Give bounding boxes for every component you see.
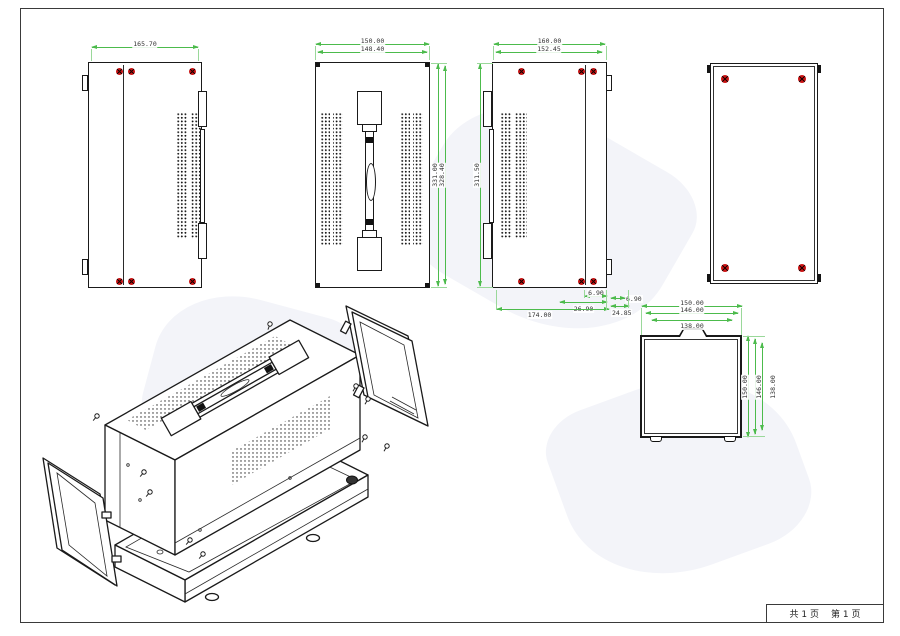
drawing-sheet: 165.70 150.00 148.40 331.00 328.40 xyxy=(0,0,900,636)
exploded-view-drawing xyxy=(40,300,470,610)
mount-tab xyxy=(606,75,612,91)
screw-icon xyxy=(518,68,525,75)
corner-tab xyxy=(707,65,710,73)
vent-grid xyxy=(401,113,423,245)
current-page-label: 第 1 页 xyxy=(831,607,860,620)
dimension-width-inner: 148.40 xyxy=(318,52,427,53)
dimension-bottom-small: 6.90 xyxy=(585,296,607,297)
dimension-height-inner: 328.40 xyxy=(445,66,446,284)
vent-grid xyxy=(321,113,343,245)
bracket-tab xyxy=(198,91,207,127)
vent-grid xyxy=(501,113,527,239)
screw-icon xyxy=(721,264,729,272)
vent-grid xyxy=(177,113,201,239)
dim-label: 6.90 xyxy=(587,289,605,297)
screw-icon xyxy=(721,75,729,83)
dim-label: 138.00 xyxy=(769,374,777,399)
bracket-tab xyxy=(483,223,492,259)
foot xyxy=(307,535,320,542)
screw-icon xyxy=(189,68,196,75)
screw-icon xyxy=(128,68,135,75)
dimension-right-2: 146.00 xyxy=(755,339,756,434)
handle-oval-cutout xyxy=(366,163,376,201)
screw-icon xyxy=(116,68,123,75)
screw-icon xyxy=(189,278,196,285)
dim-label: 160.00 xyxy=(537,37,562,45)
handle-end-block xyxy=(357,91,382,125)
dim-label: 311.50 xyxy=(473,162,481,187)
corner-mark xyxy=(316,63,320,67)
screw-icon xyxy=(578,278,585,285)
view-side-panel xyxy=(88,62,202,288)
vent-gap xyxy=(512,113,515,239)
extension-line xyxy=(743,436,765,437)
panel-inner-edge xyxy=(644,339,738,434)
corner-tab xyxy=(707,274,710,282)
extension-line xyxy=(477,63,493,64)
view-top-panel xyxy=(315,62,430,288)
bracket-tab xyxy=(198,223,207,259)
extension-line xyxy=(477,287,493,288)
bracket-rail xyxy=(489,129,494,223)
corner-mark xyxy=(425,63,429,67)
dim-label: 328.40 xyxy=(438,162,446,187)
handle-grip-pad xyxy=(366,137,373,143)
screw-icon xyxy=(798,264,806,272)
dimension-right-1: 150.00 xyxy=(748,336,749,437)
mount-tab xyxy=(82,259,88,275)
screw-icon xyxy=(578,68,585,75)
extension-line xyxy=(431,287,447,288)
panel-inner-edge xyxy=(713,66,815,281)
extension-line xyxy=(91,49,92,61)
foot xyxy=(724,436,736,442)
screw-icon xyxy=(128,278,135,285)
dimension-height: 311.50 xyxy=(480,64,481,286)
dimension-top-3: 138.00 xyxy=(652,320,732,321)
total-pages-label: 共 1 页 xyxy=(790,607,819,620)
extension-line xyxy=(493,46,494,60)
dim-label: 148.40 xyxy=(360,45,385,53)
panel-seam-line xyxy=(123,65,124,285)
corner-mark xyxy=(316,283,320,287)
extension-line xyxy=(743,336,765,337)
corner-tab xyxy=(818,65,821,73)
screw-icon xyxy=(116,278,123,285)
bracket-rail xyxy=(200,129,205,223)
handle-end-block xyxy=(357,237,382,271)
dim-label: 146.00 xyxy=(679,306,704,314)
extension-line xyxy=(431,63,447,64)
dimension-bottom-mid: 26.90 xyxy=(560,302,607,303)
extension-line xyxy=(584,290,585,298)
dim-label: 150.00 xyxy=(741,374,749,399)
foot xyxy=(650,436,662,442)
dimension-width-inner: 152.45 xyxy=(496,52,602,53)
screw-icon xyxy=(590,68,597,75)
dim-label: 150.00 xyxy=(360,37,385,45)
vent-gap xyxy=(410,113,413,245)
extension-line xyxy=(198,49,199,61)
dimension-right-3: 138.00 xyxy=(762,343,763,430)
panel-seam-line xyxy=(585,65,586,285)
extension-line xyxy=(641,308,642,335)
view-back-panel xyxy=(710,63,818,284)
dimension-bottom-overall: 174.00 xyxy=(497,309,609,310)
view-vent-panel xyxy=(492,62,607,288)
handle-grip-pad xyxy=(366,219,373,225)
extension-line xyxy=(315,46,316,60)
bracket-tab xyxy=(483,91,492,127)
mount-tab xyxy=(82,75,88,91)
view-front-panel xyxy=(640,335,742,438)
dim-label: 152.45 xyxy=(536,45,561,53)
dim-label: 174.00 xyxy=(527,311,552,319)
vent-gap xyxy=(187,113,190,239)
extension-line xyxy=(429,46,430,60)
extension-line xyxy=(628,290,629,308)
dimension-bottom-right-top: 6.90 xyxy=(611,298,625,299)
screw-icon xyxy=(798,75,806,83)
dim-label: 24.85 xyxy=(611,309,633,317)
extension-line xyxy=(741,308,742,335)
title-block: 共 1 页 第 1 页 xyxy=(766,604,883,622)
dimension-width: 165.70 xyxy=(92,47,198,48)
dimension-top-2: 146.00 xyxy=(646,313,738,314)
screw-icon xyxy=(590,278,597,285)
dim-label: 138.00 xyxy=(679,322,704,330)
dimension-bottom-right-bottom: 24.85 xyxy=(611,306,629,307)
extension-line xyxy=(606,46,607,60)
dim-label: 165.70 xyxy=(132,40,157,48)
mount-tab xyxy=(606,259,612,275)
corner-tab xyxy=(818,274,821,282)
foot xyxy=(206,594,219,601)
screw-icon xyxy=(518,278,525,285)
extension-line xyxy=(606,290,607,310)
vent-gap xyxy=(330,113,333,245)
corner-mark xyxy=(425,283,429,287)
extension-line xyxy=(496,290,497,310)
loose-foot xyxy=(347,476,358,484)
